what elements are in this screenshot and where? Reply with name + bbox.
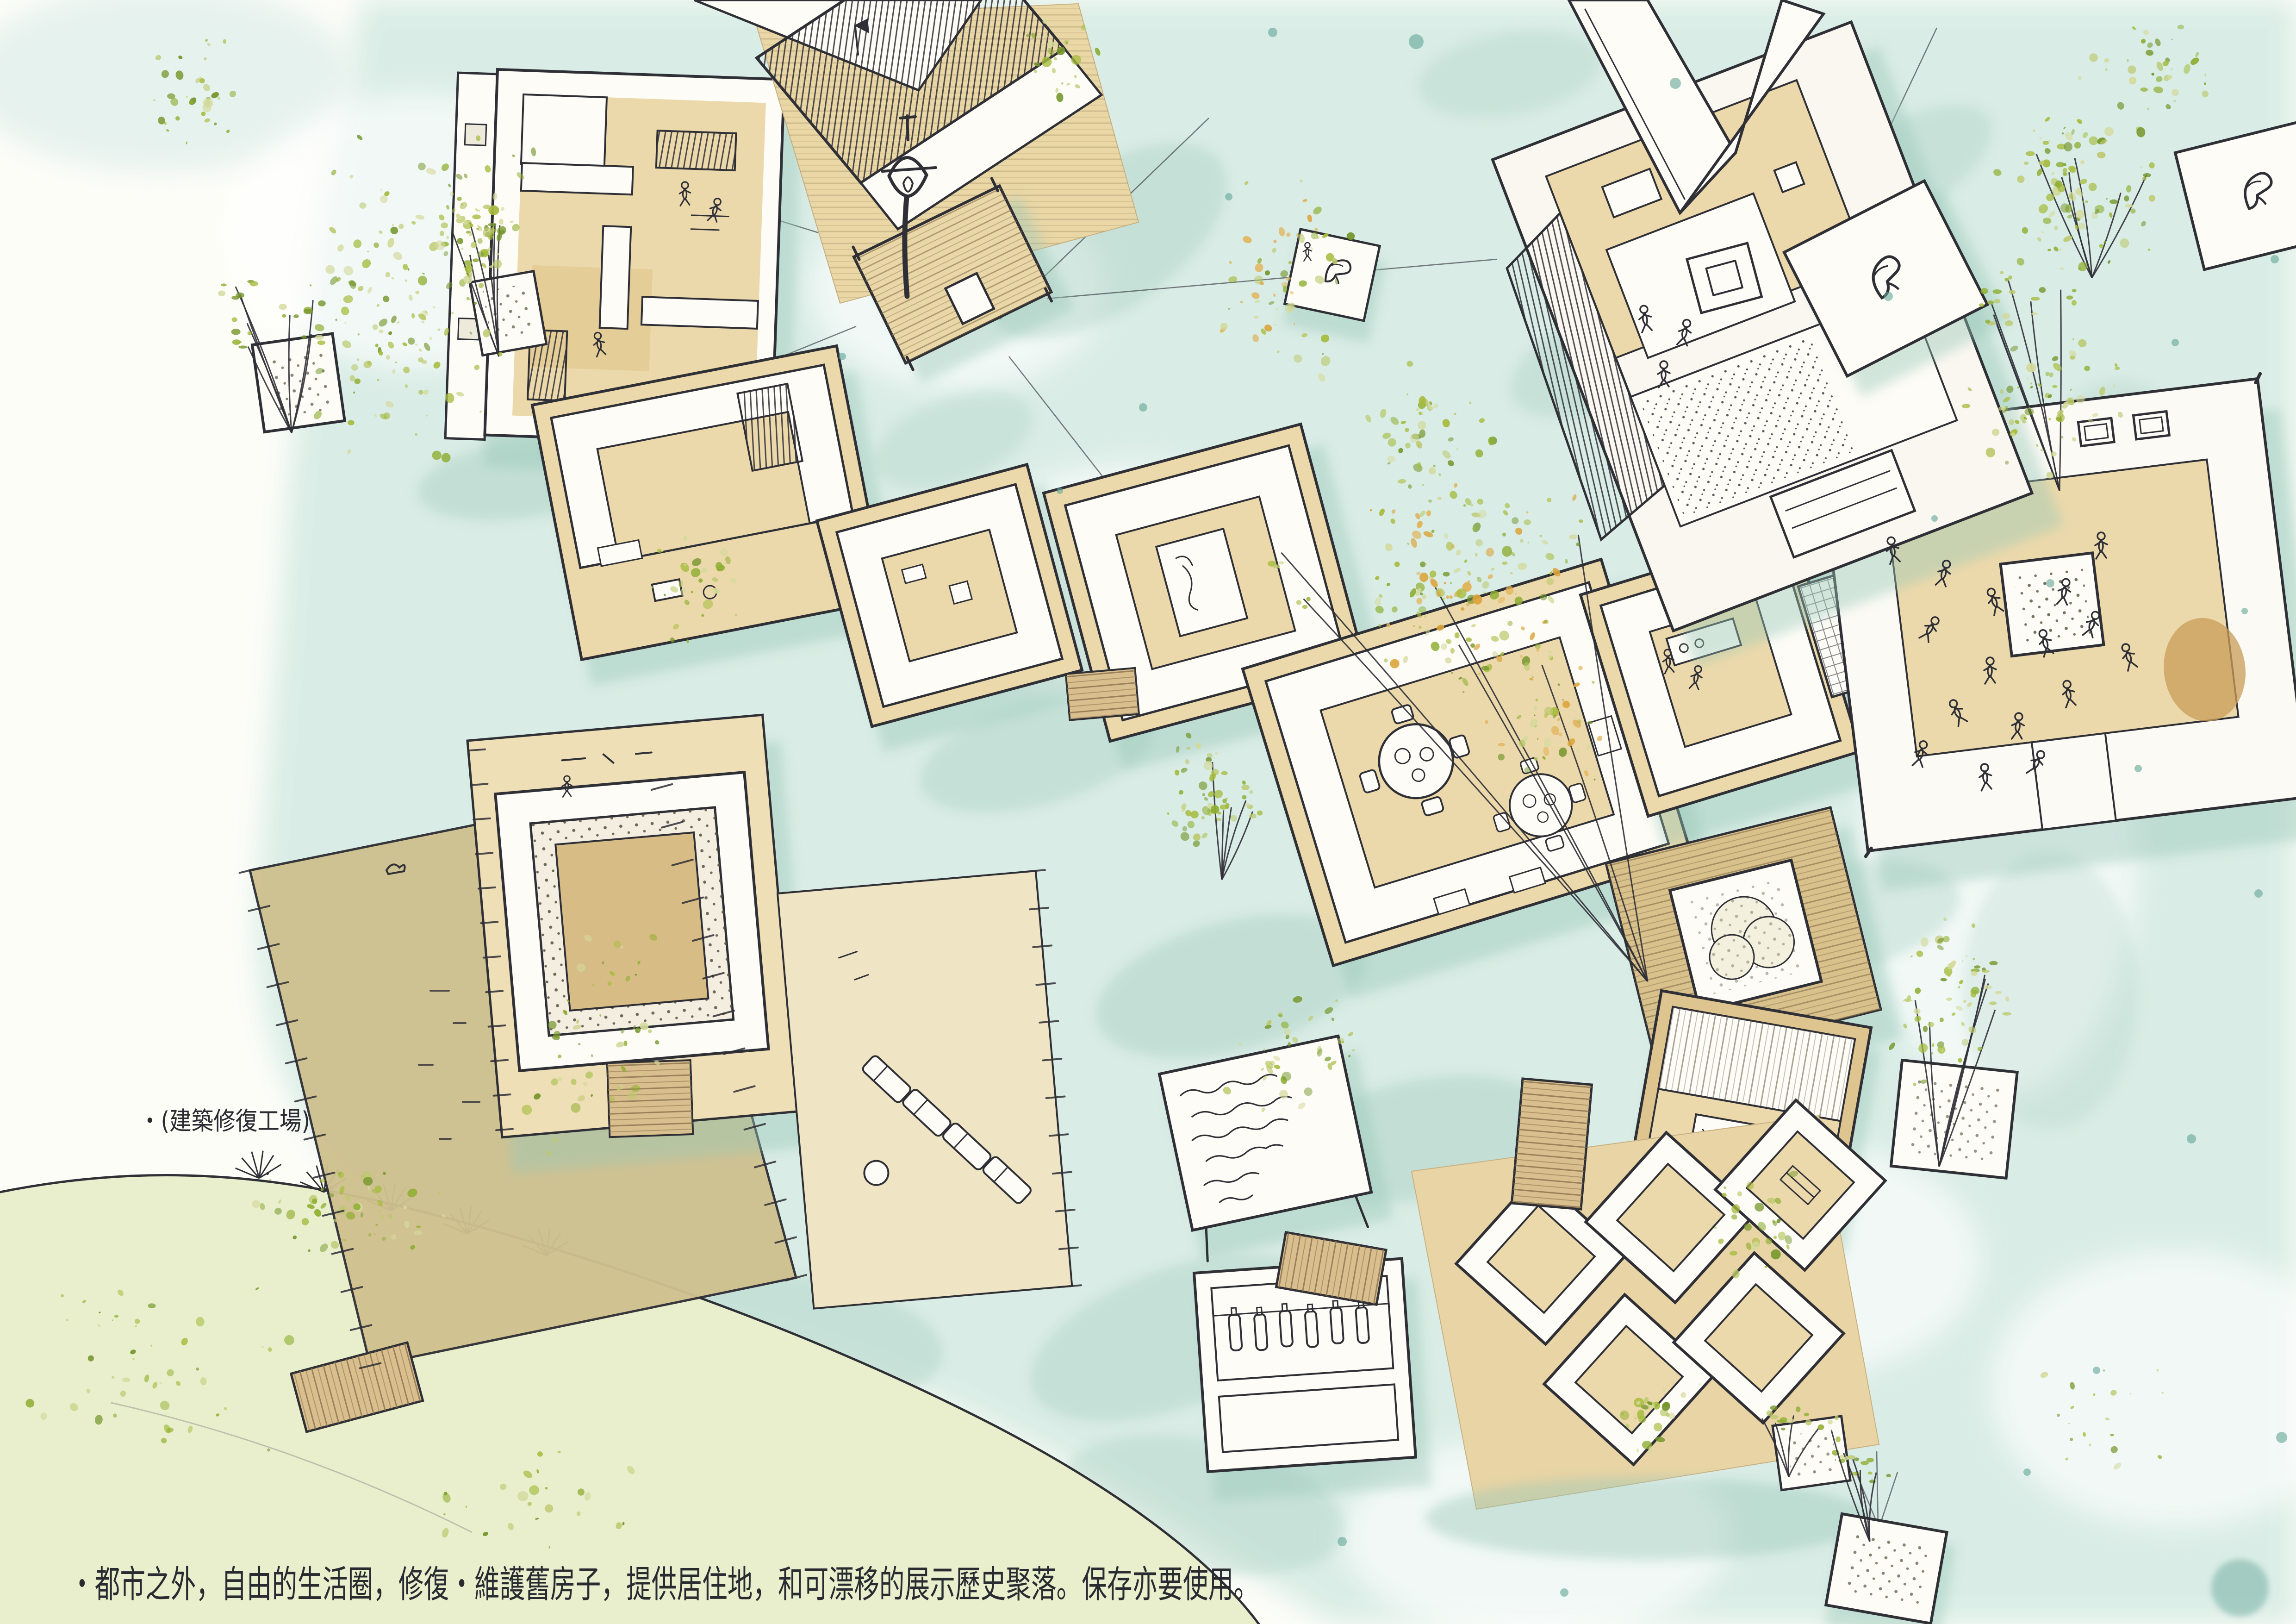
plank-bridge-icon	[1066, 668, 1139, 720]
pond-courtyard-house	[467, 713, 816, 1174]
bench-deck	[778, 871, 1072, 1308]
artwork-stage: ・(建築修復工場) ・都市之外，自由的生活圈，修復・維護舊房子，提供居住地，和可…	[0, 0, 2296, 1624]
floating-planter-1	[1822, 1514, 1958, 1624]
floating-planter-2	[1891, 1060, 2017, 1178]
caption-text: ・都市之外，自由的生活圈，修復・維護舊房子，提供居住地，和可漂移的展示歷史聚落。…	[69, 1563, 1259, 1606]
tree-pot-1	[252, 334, 345, 432]
plank-bridge-1	[1512, 1079, 1592, 1209]
workshop-label: ・(建築修復工場)	[139, 1106, 310, 1136]
watercolor-site-plan: ・(建築修復工場) ・都市之外，自由的生活圈，修復・維護舊房子，提供居住地，和可…	[0, 0, 2296, 1624]
